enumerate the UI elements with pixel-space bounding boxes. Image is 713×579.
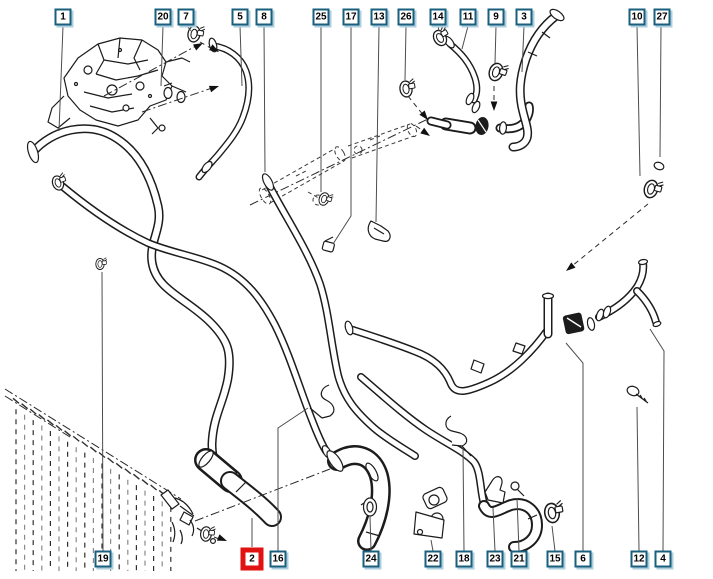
leader-line-13 (376, 26, 379, 222)
leader-line-18 (463, 448, 464, 551)
leader-line-9 (495, 26, 496, 63)
callout-box-19[interactable]: 19 (95, 551, 112, 568)
leader-line-1 (59, 26, 63, 131)
callout-box-16[interactable]: 16 (270, 551, 287, 568)
clamp-9 (487, 61, 510, 84)
callout-box-23[interactable]: 23 (487, 551, 504, 568)
callout-box-24[interactable]: 24 (363, 551, 380, 568)
callout-box-6[interactable]: 6 (575, 551, 592, 568)
leader-line-10 (637, 26, 640, 176)
grommet-24 (361, 498, 377, 516)
callout-box-1[interactable]: 1 (55, 9, 72, 26)
engine-assembly (48, 38, 190, 134)
clamp-7 (187, 24, 206, 44)
callout-box-27[interactable]: 27 (654, 9, 671, 26)
leader-line-6 (566, 343, 583, 551)
leader-line-4 (650, 329, 664, 551)
leader-line-8 (264, 26, 265, 172)
callout-box-13[interactable]: 13 (371, 9, 388, 26)
valve-22 (414, 486, 448, 538)
leader-line-12 (637, 407, 639, 551)
callout-box-17[interactable]: 17 (343, 9, 360, 26)
callout-box-15[interactable]: 15 (547, 551, 564, 568)
pointer-arrows (104, 40, 648, 521)
callout-box-5[interactable]: 5 (232, 9, 249, 26)
callout-box-14[interactable]: 14 (430, 9, 447, 26)
leader-line-26 (405, 26, 406, 80)
clip-17 (322, 237, 335, 252)
callout-box-8[interactable]: 8 (256, 9, 273, 26)
clamp-25 (317, 191, 334, 208)
leader-line-22 (431, 540, 433, 551)
leader-line-17 (333, 26, 351, 244)
callout-box-3[interactable]: 3 (516, 9, 533, 26)
parts-diagram-page: 1207582517132614119310271921624221823211… (0, 0, 713, 579)
screw-21 (511, 482, 524, 496)
callout-box-10[interactable]: 10 (629, 9, 646, 26)
radiator-core (5, 389, 228, 571)
callout-box-26[interactable]: 26 (398, 9, 415, 26)
clamp-26 (399, 78, 418, 98)
callout-box-11[interactable]: 11 (460, 9, 477, 26)
callout-box-22[interactable]: 22 (425, 551, 442, 568)
callout-box-2[interactable]: 2 (241, 548, 264, 571)
callout-box-12[interactable]: 12 (631, 551, 648, 568)
callout-box-4[interactable]: 4 (655, 551, 672, 568)
callout-box-20[interactable]: 20 (155, 9, 172, 26)
callout-box-18[interactable]: 18 (456, 551, 473, 568)
callout-box-9[interactable]: 9 (488, 9, 505, 26)
callout-box-25[interactable]: 25 (313, 9, 330, 26)
leader-line-19 (102, 272, 103, 551)
leader-line-15 (552, 526, 555, 551)
clamp-15 (543, 500, 565, 523)
callout-box-7[interactable]: 7 (178, 9, 195, 26)
bracket-16 (321, 385, 334, 418)
leader-line-27 (660, 26, 661, 157)
ring-27 (653, 161, 665, 171)
leader-line-11 (462, 26, 468, 49)
leader-line-16 (278, 408, 308, 551)
bracket-23 (485, 477, 505, 503)
hose-diagram-artwork (0, 0, 713, 579)
clamp-10 (642, 178, 664, 201)
callout-box-21[interactable]: 21 (511, 551, 528, 568)
clamp-19 (96, 258, 107, 270)
screw-12 (626, 385, 648, 403)
